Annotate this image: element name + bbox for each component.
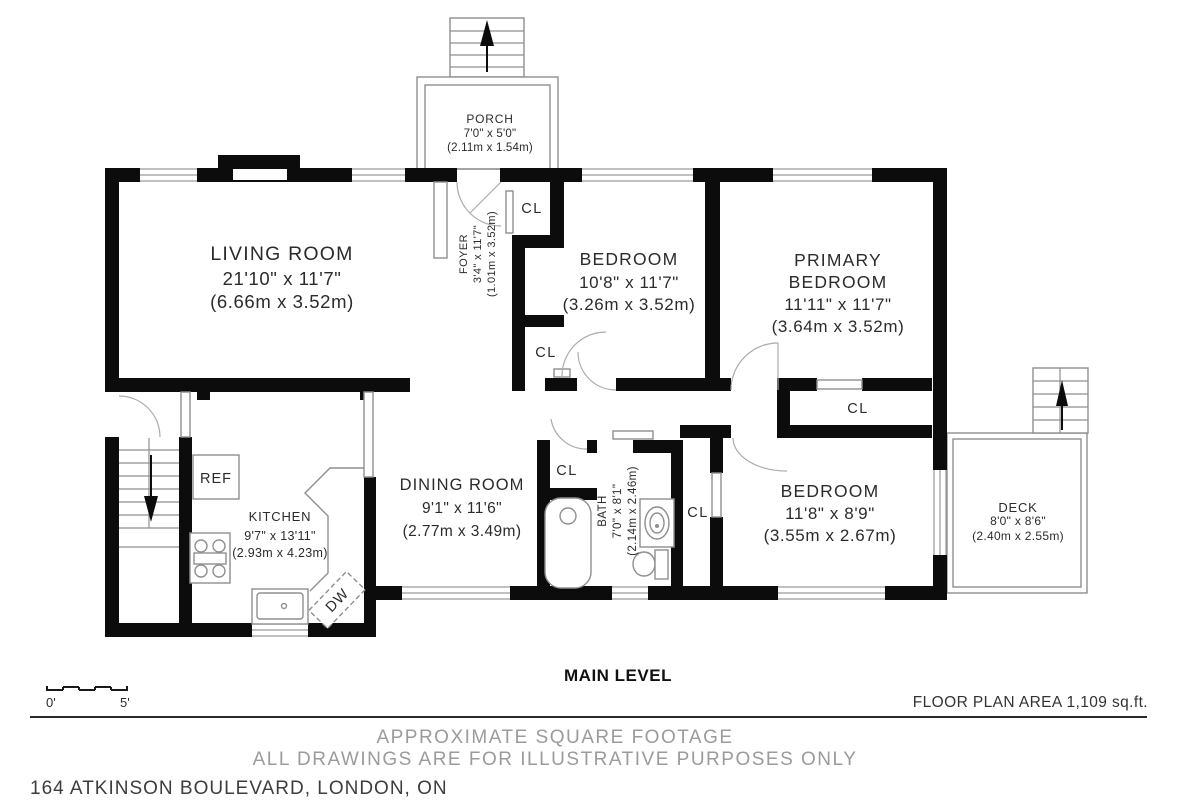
svg-text:DECK: DECK xyxy=(998,500,1037,515)
svg-text:DINING ROOM: DINING ROOM xyxy=(400,476,525,494)
scale-start-label: 0' xyxy=(46,695,56,710)
svg-text:8'0" x 8'6": 8'0" x 8'6" xyxy=(990,514,1046,528)
refrigerator-label: REF xyxy=(200,471,232,487)
svg-text:FOYER: FOYER xyxy=(458,234,470,274)
svg-text:7'0" x 5'0": 7'0" x 5'0" xyxy=(464,128,516,140)
svg-text:11'11" x 11'7": 11'11" x 11'7" xyxy=(784,295,891,314)
scale-bar: 0' 5' xyxy=(46,684,142,712)
primary-bedroom-label: PRIMARY BEDROOM 11'11" x 11'7" (3.64m x … xyxy=(772,250,905,336)
property-address: 164 ATKINSON BOULEVARD, LONDON, ON xyxy=(30,778,448,800)
bathtub xyxy=(545,498,591,588)
svg-text:BEDROOM: BEDROOM xyxy=(789,272,888,292)
bath-vanity-sink xyxy=(640,499,674,547)
floor-plan-area-text: FLOOR PLAN AREA 1,109 sq.ft. xyxy=(913,694,1148,712)
kitchen-sink xyxy=(252,589,308,624)
bedroom-3-label: BEDROOM 11'8" x 8'9" (3.55m x 2.67m) xyxy=(764,481,897,545)
dishwasher: DW xyxy=(309,572,365,629)
foyer-label: FOYER 3'4" x 11'7" (1.01m x 3.52m) xyxy=(458,211,498,297)
bath-label: BATH 7'0" x 8'1" (2.14m x 2.46m) xyxy=(597,466,639,556)
basement-stairs xyxy=(119,438,179,547)
svg-text:PORCH: PORCH xyxy=(466,112,513,126)
floor-plan-page: REF DW xyxy=(0,0,1200,805)
linen-closet-label: CL xyxy=(556,463,578,479)
svg-text:(1.01m x 3.52m): (1.01m x 3.52m) xyxy=(486,211,498,297)
svg-text:(2.77m x 3.49m): (2.77m x 3.49m) xyxy=(403,523,522,540)
bath-fixtures xyxy=(545,498,674,588)
svg-text:(2.11m x 1.54m): (2.11m x 1.54m) xyxy=(447,142,533,154)
svg-text:BEDROOM: BEDROOM xyxy=(580,249,679,269)
primary-closet-label: CL xyxy=(847,401,869,417)
disclaimer-line-2: ALL DRAWINGS ARE FOR ILLUSTRATIVE PURPOS… xyxy=(0,749,1110,771)
svg-text:10'8" x 11'7": 10'8" x 11'7" xyxy=(579,273,679,292)
svg-text:21'10" x 11'7": 21'10" x 11'7" xyxy=(223,268,342,289)
scale-end-label: 5' xyxy=(120,695,130,710)
porch-stairs-up-arrow-icon xyxy=(480,20,494,72)
svg-text:7'0" x 8'1": 7'0" x 8'1" xyxy=(612,484,624,539)
svg-text:(2.14m x 2.46m): (2.14m x 2.46m) xyxy=(627,466,639,556)
bedroom-3-closet-label: CL xyxy=(687,505,709,521)
svg-text:(3.55m x 2.67m): (3.55m x 2.67m) xyxy=(764,526,897,545)
svg-text:(6.66m x 3.52m): (6.66m x 3.52m) xyxy=(210,291,354,312)
svg-text:BEDROOM: BEDROOM xyxy=(781,481,880,501)
svg-text:(2.93m x 4.23m): (2.93m x 4.23m) xyxy=(232,546,328,560)
svg-text:KITCHEN: KITCHEN xyxy=(249,509,312,524)
svg-text:(3.26m x 3.52m): (3.26m x 3.52m) xyxy=(563,295,696,314)
svg-text:3'4" x 11'7": 3'4" x 11'7" xyxy=(472,225,484,283)
deck-structure xyxy=(947,368,1088,593)
bedroom-2-label: BEDROOM 10'8" x 11'7" (3.26m x 3.52m) xyxy=(563,249,696,314)
footer-divider xyxy=(30,716,1147,718)
level-title: MAIN LEVEL xyxy=(0,666,1200,686)
svg-text:9'7" x 13'11": 9'7" x 13'11" xyxy=(244,529,316,543)
bedroom-2-closet-label: CL xyxy=(535,345,557,361)
svg-text:9'1" x 11'6": 9'1" x 11'6" xyxy=(422,500,502,517)
walls xyxy=(105,155,947,637)
foyer-closet-label: CL xyxy=(521,201,543,217)
dining-room-label: DINING ROOM 9'1" x 11'6" (2.77m x 3.49m) xyxy=(400,476,525,540)
living-room-label: LIVING ROOM 21'10" x 11'7" (6.66m x 3.52… xyxy=(210,243,354,312)
kitchen-label: KITCHEN 9'7" x 13'11" (2.93m x 4.23m) xyxy=(232,509,328,560)
svg-text:(2.40m x 2.55m): (2.40m x 2.55m) xyxy=(972,529,1064,543)
stove xyxy=(190,533,230,583)
svg-text:PRIMARY: PRIMARY xyxy=(794,250,882,270)
disclaimer-line-1: APPROXIMATE SQUARE FOOTAGE xyxy=(0,727,1110,749)
svg-text:BATH: BATH xyxy=(597,495,609,526)
svg-text:LIVING ROOM: LIVING ROOM xyxy=(210,243,353,265)
svg-text:11'8" x 8'9": 11'8" x 8'9" xyxy=(785,504,875,523)
svg-text:(3.64m x 3.52m): (3.64m x 3.52m) xyxy=(772,317,905,336)
